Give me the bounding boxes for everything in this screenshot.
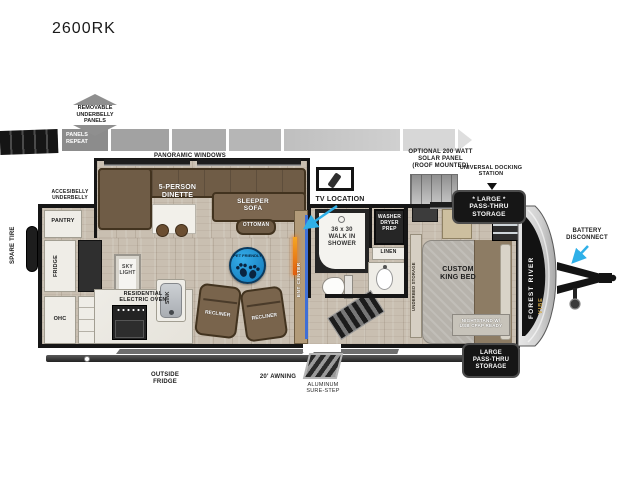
- lower-frame-bar: [46, 355, 516, 362]
- electric-oven: [112, 305, 147, 340]
- hitch-a-frame: [557, 262, 601, 294]
- awning-end-cap: [84, 356, 90, 362]
- faucet-icon: [169, 310, 174, 315]
- entry-door-gap: [303, 344, 341, 352]
- slideout-window: [104, 159, 190, 166]
- dinette-stool: [175, 224, 188, 237]
- pass-thru-storage-bottom: LARGE PASS-THRU STORAGE: [462, 343, 520, 378]
- underbed-storage-label: UNDERBED STORAGE: [412, 240, 417, 334]
- sleeper-sofa-label: SLEEPER SOFA: [217, 198, 289, 213]
- shower-washer-wall: [369, 208, 372, 248]
- arrow-up-icon: [73, 94, 117, 105]
- panels-bar-segment: [229, 129, 281, 151]
- linen-label: LINEN: [372, 250, 405, 256]
- washer-dryer-label: WASHER DRYER PREP: [374, 215, 405, 232]
- spare-tire-icon: [26, 226, 38, 272]
- oven-knobs: [116, 308, 144, 312]
- panoramic-windows-label: PANORAMIC WINDOWS: [100, 153, 280, 160]
- battery-disconnect-label: BATTERY DISCONNECT: [548, 228, 626, 242]
- kitchen-tall-cabinet: [78, 240, 102, 292]
- pet-friendly-badge: PET FRIENDLY: [229, 247, 266, 284]
- bedroom-overhead-cabinet: [412, 207, 438, 222]
- panels-bar-segment: [403, 129, 455, 151]
- page-title: 2600RK: [52, 20, 142, 38]
- vanity-faucet-icon: [383, 265, 387, 269]
- pantry-label: PANTRY: [44, 218, 82, 224]
- dinette-label: 5-PERSON DINETTE: [135, 184, 220, 200]
- sure-step-label: ALUMINUM SURE-STEP: [292, 382, 354, 395]
- sink-label: SINK: [166, 287, 172, 309]
- recliner-left: RECLINER: [194, 283, 242, 340]
- king-bed-label: CUSTOM KING BED: [426, 266, 490, 282]
- removable-underbelly-badge: REMOVABLE UNDERBELLY PANELS: [56, 94, 134, 136]
- pet-friendly-label: PET FRIENDLY: [231, 253, 264, 258]
- docking-station-label: UNIVERSAL DOCKING STATION: [446, 165, 536, 178]
- panels-bar-arrowhead: [458, 129, 472, 151]
- awning-rail: [116, 349, 306, 354]
- fridge: [44, 240, 76, 292]
- recliner-right: RECLINER: [240, 285, 289, 342]
- docking-station-arrow-icon: [487, 183, 497, 190]
- arrow-down-icon: [73, 125, 117, 136]
- tv-remote-icon: [327, 172, 341, 188]
- awning-label: 20' AWNING: [238, 374, 318, 381]
- tv-strip: [305, 215, 308, 339]
- bath-bottom-wall: [325, 294, 406, 298]
- accessibelly-underbelly-label: ACCESIBELLY UNDERBELLY: [33, 190, 107, 202]
- skylight-label: SKY LIGHT: [114, 265, 141, 277]
- pass-thru-storage-top: * LARGE * PASS-THRU STORAGE: [452, 190, 526, 224]
- ottoman-label: OTTOMAN: [236, 223, 276, 229]
- brand-forest-river-label: FOREST RIVER: [528, 238, 535, 338]
- slideout-window: [197, 159, 301, 166]
- removable-underbelly-label: REMOVABLE UNDERBELLY PANELS: [56, 105, 134, 125]
- pass-thru-storage-bottom-label: LARGE PASS-THRU STORAGE: [473, 350, 509, 371]
- panels-bar-segment: [284, 129, 400, 151]
- brand-vibe-label: VIBE: [538, 286, 544, 326]
- tv-location-label: TV LOCATION: [298, 196, 382, 204]
- ohc-label: OHC: [44, 316, 76, 322]
- dinette-stool: [156, 224, 169, 237]
- spare-tire-label: SPARE TIRE: [10, 214, 17, 276]
- pass-thru-storage-top-label: * LARGE * PASS-THRU STORAGE: [469, 196, 508, 218]
- hitch-ball-socket: [610, 275, 616, 281]
- recliner-right-label: RECLINER: [245, 311, 283, 322]
- shower-drain-icon: [338, 216, 345, 223]
- underbelly-panels-strip: [0, 129, 58, 155]
- oven-label: RESIDENTIAL ELECTRIC OVEN: [95, 291, 191, 304]
- living-bath-wall: [308, 206, 311, 298]
- recliner-left-label: RECLINER: [198, 309, 236, 320]
- fridge-label: FRIDGE: [53, 248, 59, 284]
- outside-fridge-label: OUTSIDE FRIDGE: [128, 372, 202, 386]
- vanity-sink: [376, 268, 393, 290]
- nightstand-label: NIGHTSTAND W/ USB CPAP READY: [452, 318, 510, 328]
- shower-label: 36 x 30 WALK IN SHOWER: [317, 227, 367, 248]
- tv-icon: [316, 167, 354, 191]
- floorplan-page: 2600RK REMOVABLE UNDERBELLY PANELS PANEL…: [0, 0, 640, 480]
- panels-bar-segment: [172, 129, 226, 151]
- tongue-jack-wheel: [570, 299, 580, 309]
- oven-door: [115, 320, 144, 338]
- ent-center-label: ENT CENTER: [296, 242, 301, 318]
